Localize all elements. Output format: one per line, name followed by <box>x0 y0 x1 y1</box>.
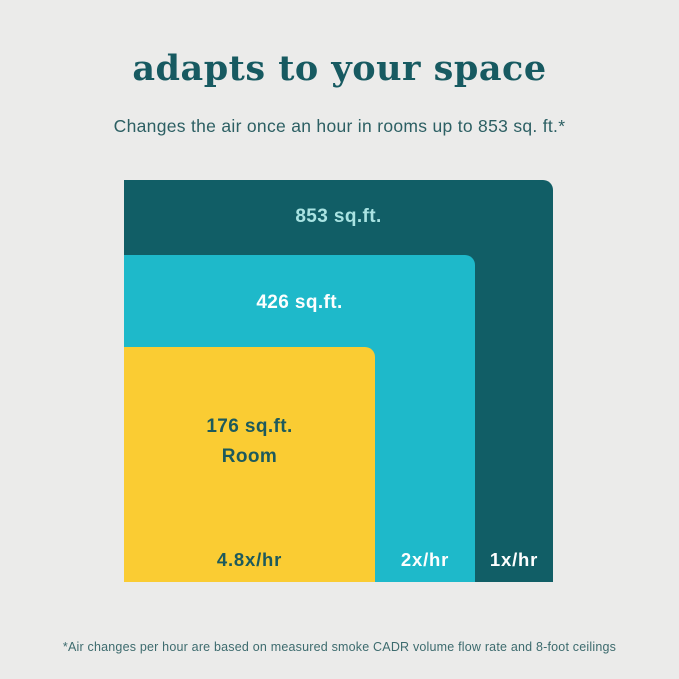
adapts-to-your-space-infographic: adapts to your space Changes the air onc… <box>0 0 679 679</box>
room-426-sqft-label: 426 sq.ft. <box>124 292 475 314</box>
subtitle: Changes the air once an hour in rooms up… <box>0 116 679 137</box>
room-176-sqft-rect: 176 sq.ft. Room <box>124 347 375 582</box>
room-176-sqft-label: 176 sq.ft. <box>124 416 375 438</box>
footnote: *Air changes per hour are based on measu… <box>0 640 679 654</box>
rate-label-2x-hr: 2x/hr <box>375 549 475 571</box>
rate-label-1x-hr: 1x/hr <box>475 549 553 571</box>
room-176-sublabel: Room <box>124 446 375 468</box>
room-853-sqft-label: 853 sq.ft. <box>124 206 553 228</box>
page-title: adapts to your space <box>0 48 679 89</box>
rate-label-4-8x-hr: 4.8x/hr <box>124 549 375 571</box>
